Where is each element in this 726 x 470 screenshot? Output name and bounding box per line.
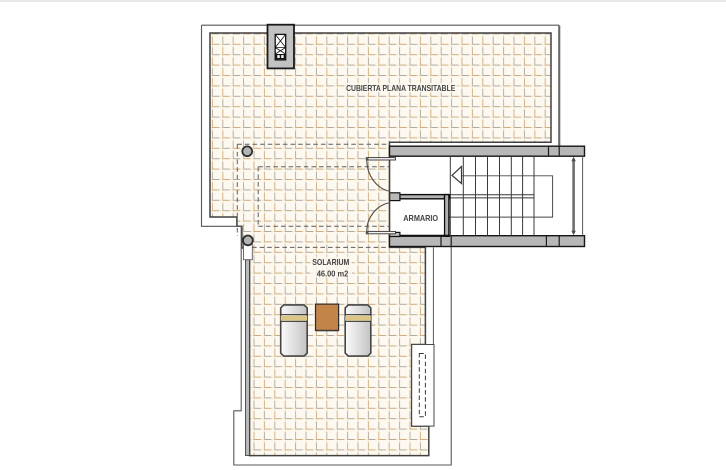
svg-text:CUBIERTA PLANA TRANSITABLE: CUBIERTA PLANA TRANSITABLE <box>346 84 456 93</box>
svg-text:46.00 m2: 46.00 m2 <box>317 269 349 278</box>
svg-text:ARMARIO: ARMARIO <box>403 213 438 223</box>
svg-text:SOLARIUM: SOLARIUM <box>312 257 349 267</box>
